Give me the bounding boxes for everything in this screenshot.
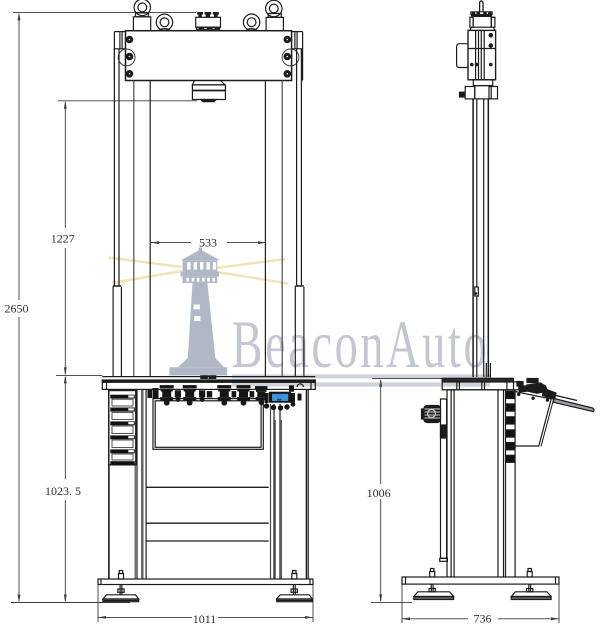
svg-text:1023. 5: 1023. 5 xyxy=(45,484,81,498)
svg-text:1011: 1011 xyxy=(193,612,217,626)
svg-text:1227: 1227 xyxy=(51,232,75,246)
svg-text:533: 533 xyxy=(199,236,217,250)
svg-text:2650: 2650 xyxy=(5,302,29,316)
svg-text:736: 736 xyxy=(474,612,492,626)
svg-text:1006: 1006 xyxy=(367,486,391,500)
